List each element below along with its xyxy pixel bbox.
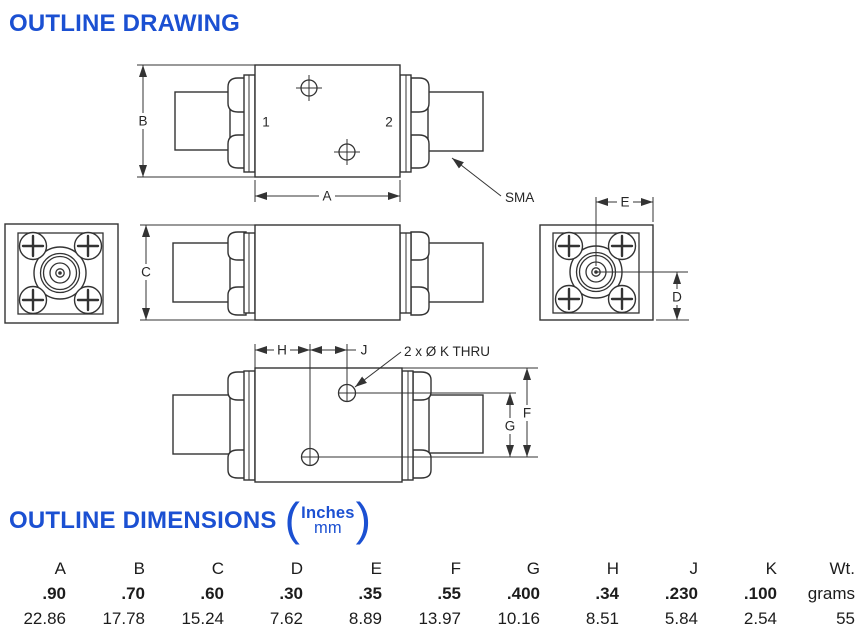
svg-text:H: H (277, 343, 287, 358)
dim-label-H: H (274, 342, 290, 358)
units-mm: mm (314, 521, 342, 536)
right-end-view: E D (540, 194, 689, 320)
sma-connector-right (400, 232, 483, 315)
col-header: B (66, 556, 145, 581)
flange-screw (609, 233, 636, 260)
units-paren-open: ( (285, 500, 301, 538)
dim-value-inches: .70 (66, 581, 145, 606)
dim-value-mm: 17.78 (66, 606, 145, 631)
svg-text:J: J (361, 343, 368, 358)
dim-label-A: A (319, 188, 335, 204)
top-view: 1 2 SMA B A (135, 65, 534, 205)
dim-label-J: J (357, 342, 372, 358)
dim-value-inches: .35 (303, 581, 382, 606)
flange-screw (556, 286, 583, 313)
col-header: J (619, 556, 698, 581)
dim-value-mm: 22.86 (0, 606, 66, 631)
datasheet-page: OUTLINE DRAWING (0, 0, 868, 635)
sma-label: SMA (505, 190, 534, 205)
col-header: D (224, 556, 303, 581)
dimensions-title: OUTLINE DIMENSIONS ( Inches mm ) (9, 502, 371, 540)
flange-screw (609, 286, 636, 313)
col-header: Wt. (777, 556, 855, 581)
col-header: H (540, 556, 619, 581)
sma-leader-line (452, 158, 501, 196)
units-paren-close: ) (356, 500, 372, 538)
bottom-view: 2 x Ø K THRU H J G F (173, 342, 538, 482)
body-top-view (255, 65, 400, 177)
weight-units-label: grams (777, 581, 855, 606)
col-header: K (698, 556, 777, 581)
sma-connector-left (173, 371, 255, 480)
svg-text:D: D (672, 290, 682, 305)
sma-connector-right (400, 75, 483, 172)
outline-drawing-canvas: 1 2 SMA B A (0, 0, 868, 550)
dim-value-mm: 15.24 (145, 606, 224, 631)
dim-label-D: D (669, 289, 685, 305)
dim-value-mm: 7.62 (224, 606, 303, 631)
dim-value-inches: .90 (0, 581, 66, 606)
sma-connector-left (175, 75, 255, 172)
dim-label-C: C (138, 264, 154, 280)
col-header: A (0, 556, 66, 581)
dim-value-inches: .230 (619, 581, 698, 606)
flange-screw (20, 287, 47, 314)
sma-connector-right (402, 371, 483, 480)
units-stack: Inches mm (301, 506, 354, 536)
svg-text:G: G (505, 419, 516, 434)
dim-label-F: F (519, 405, 535, 421)
svg-text:E: E (620, 195, 629, 210)
dimensions-title-text: OUTLINE DIMENSIONS (9, 507, 277, 535)
dim-value-mm: 13.97 (382, 606, 461, 631)
dim-value-inches: .60 (145, 581, 224, 606)
dim-value-mm: 8.89 (303, 606, 382, 631)
dim-value-mm: 5.84 (619, 606, 698, 631)
table-header-row: A B C D E F G H J K Wt. (0, 556, 868, 581)
flange-screw (556, 233, 583, 260)
dim-label-G: G (502, 418, 518, 434)
col-header: E (303, 556, 382, 581)
port-2-label: 2 (385, 115, 393, 130)
dim-value-inches: .100 (698, 581, 777, 606)
dim-label-B: B (135, 113, 151, 129)
col-header: F (382, 556, 461, 581)
left-end-view (5, 224, 118, 323)
svg-text:B: B (138, 114, 147, 129)
weight-value: 55 (777, 606, 855, 631)
flange-screw (75, 233, 102, 260)
dim-value-mm: 8.51 (540, 606, 619, 631)
dim-value-inches: .34 (540, 581, 619, 606)
col-header: C (145, 556, 224, 581)
port-1-label: 1 (262, 115, 270, 130)
dim-label-E: E (617, 194, 633, 210)
flange-screw (20, 233, 47, 260)
hole-note: 2 x Ø K THRU (404, 344, 490, 359)
sma-connector-left (173, 232, 255, 315)
dim-value-inches: .400 (461, 581, 540, 606)
dim-value-mm: 2.54 (698, 606, 777, 631)
flange-screw (75, 287, 102, 314)
body-side-view (255, 225, 400, 320)
table-row-inches: .90 .70 .60 .30 .35 .55 .400 .34 .230 .1… (0, 581, 868, 606)
dim-value-inches: .55 (382, 581, 461, 606)
outline-dimensions-table: A B C D E F G H J K Wt. .90 .70 .60 .30 … (0, 556, 868, 631)
svg-text:C: C (141, 265, 151, 280)
table-row-mm: 22.86 17.78 15.24 7.62 8.89 13.97 10.16 … (0, 606, 868, 631)
svg-text:F: F (523, 406, 531, 421)
svg-text:A: A (322, 189, 331, 204)
body-bottom-view (255, 368, 402, 482)
col-header: G (461, 556, 540, 581)
dim-value-mm: 10.16 (461, 606, 540, 631)
side-view: C (138, 225, 483, 320)
dim-value-inches: .30 (224, 581, 303, 606)
